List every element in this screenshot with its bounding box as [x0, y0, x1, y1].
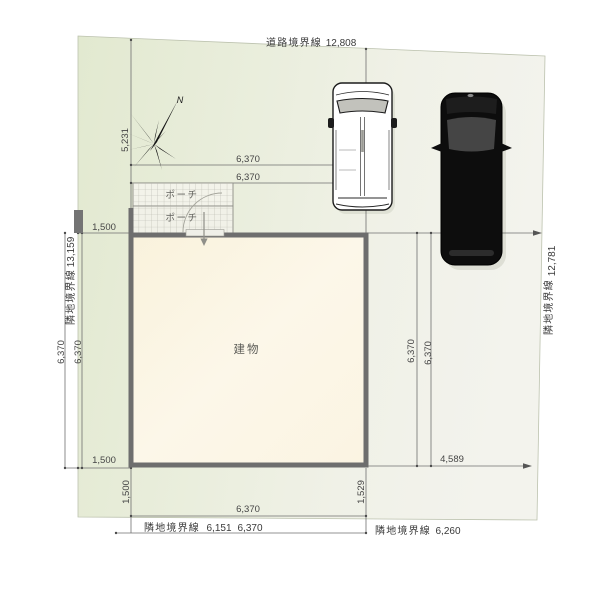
- site-plan-svg: N 道路境界線 12,808 5,231 6,370 6,370 1,500 1…: [0, 0, 600, 600]
- left-boundary-label: 隣地境界線: [64, 269, 77, 325]
- dim-building-depth-right-2: 6,370: [423, 341, 434, 365]
- dim-building-depth-right-1: 6,370: [406, 339, 417, 363]
- gate-post: [74, 210, 83, 233]
- porch-wall-stub: [129, 208, 134, 234]
- white-van: [328, 83, 397, 214]
- dim-left-setback-top: 1,500: [92, 222, 116, 233]
- right-boundary-length: 12,781: [547, 245, 558, 276]
- bottom-right-boundary-label: 隣地境界線: [375, 524, 431, 537]
- dim-building-width-boundary-row: 6,370: [237, 523, 262, 534]
- dim-bottom-right-setback: 1,529: [356, 480, 367, 504]
- entrance-threshold: [186, 230, 224, 237]
- dim-rear-setback: 1,500: [121, 480, 132, 504]
- building-label: 建物: [234, 342, 261, 356]
- dim-building-depth-left-1: 6,370: [56, 340, 67, 364]
- porch-label-lower: ポーチ: [165, 213, 198, 224]
- suv-hood: [446, 97, 497, 115]
- dim-building-width-top-2: 6,370: [236, 172, 260, 183]
- bottom-left-boundary-length: 6,151: [206, 523, 231, 534]
- dim-front-offset: 5,231: [120, 128, 131, 152]
- black-suv: [431, 93, 512, 270]
- dim-building-depth-left-2: 6,370: [73, 340, 84, 364]
- dim-left-setback-bottom: 1,500: [92, 455, 116, 466]
- suv-windshield-roof: [447, 117, 496, 152]
- van-mirror-right: [391, 118, 397, 128]
- dim-building-width-bottom: 6,370: [236, 504, 260, 515]
- right-boundary-label: 隣地境界線: [542, 279, 555, 335]
- suv-emblem: [468, 94, 474, 97]
- dim-driveway: 4,589: [440, 454, 464, 465]
- road-boundary-length: 12,808: [326, 38, 357, 49]
- bottom-right-boundary-length: 6,260: [435, 526, 460, 537]
- bottom-left-boundary-label: 隣地境界線: [144, 521, 200, 534]
- left-boundary-length: 13,159: [66, 236, 77, 267]
- north-label: N: [177, 95, 184, 105]
- building: [131, 193, 366, 465]
- van-mirror-left: [328, 118, 334, 128]
- van-windshield: [337, 99, 388, 114]
- road-boundary-label: 道路境界線: [266, 36, 322, 49]
- suv-rear-window: [449, 250, 494, 256]
- site-plan-canvas: N 道路境界線 12,808 5,231 6,370 6,370 1,500 1…: [0, 0, 600, 600]
- porch-label-upper: ポーチ: [165, 190, 198, 201]
- dim-building-width-top-1: 6,370: [236, 154, 260, 165]
